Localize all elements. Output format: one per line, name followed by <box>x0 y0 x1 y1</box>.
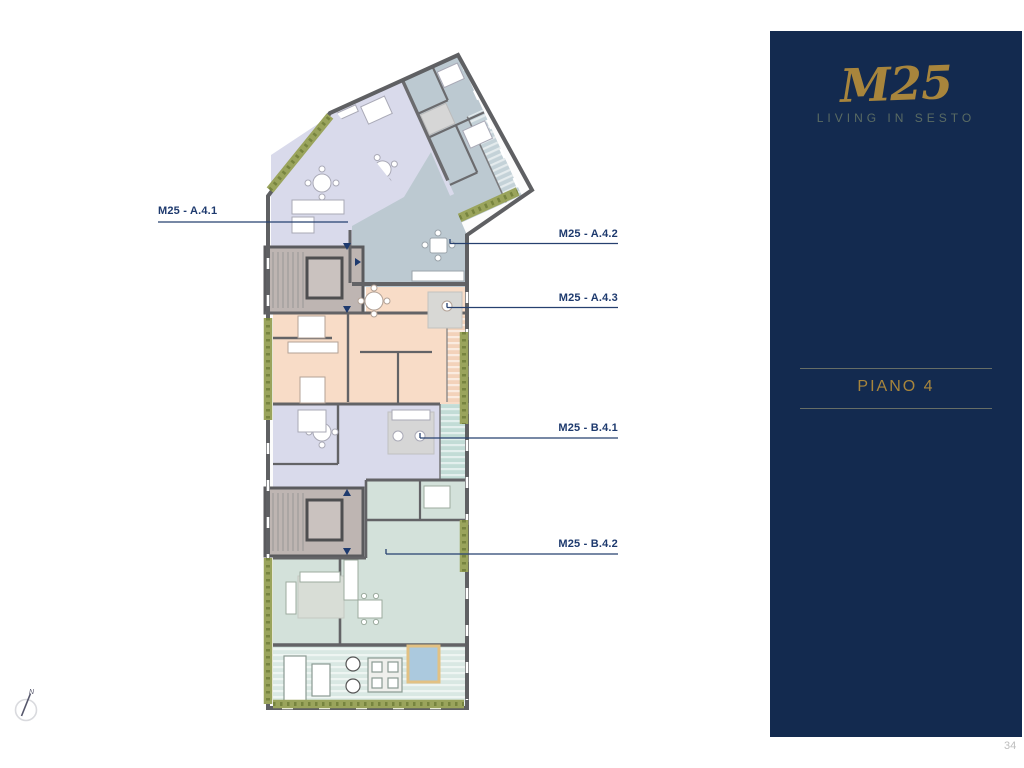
divider-bottom <box>800 408 992 409</box>
floor-label: PIANO 4 <box>770 378 1022 396</box>
stair-core-2 <box>265 488 363 556</box>
apartment-label-a41: M25 - A.4.1 <box>158 205 217 217</box>
brochure-page: N M25 - A.4.1 M25 - A.4.2 M25 - A.4.3 M2… <box>0 0 1024 768</box>
brand-tagline: LIVING IN SESTO <box>770 111 1022 125</box>
apartment-label-a43: M25 - A.4.3 <box>538 292 618 304</box>
apartment-label-a42: M25 - A.4.2 <box>538 228 618 240</box>
svg-text:N: N <box>29 689 35 696</box>
apartment-label-b41: M25 - B.4.1 <box>538 422 618 434</box>
apartment-label-b42: M25 - B.4.2 <box>538 538 618 550</box>
page-number: 34 <box>1004 740 1016 752</box>
brand-logo: M25 <box>769 53 1023 116</box>
sidebar: M25 LIVING IN SESTO PIANO 4 <box>770 31 1022 737</box>
divider-top <box>800 368 992 369</box>
compass-icon: N <box>16 689 37 721</box>
pool <box>408 646 439 682</box>
stair-core-1 <box>265 247 363 313</box>
